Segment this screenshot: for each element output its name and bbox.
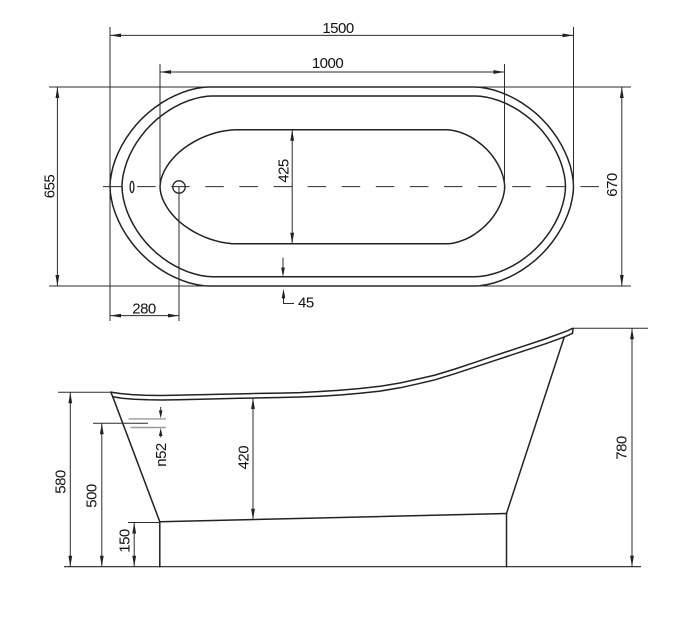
svg-text:655: 655 — [42, 175, 59, 199]
svg-text:n52: n52 — [153, 443, 170, 467]
svg-text:1500: 1500 — [322, 20, 354, 37]
svg-text:500: 500 — [84, 484, 101, 508]
svg-text:1000: 1000 — [312, 55, 344, 72]
svg-text:425: 425 — [276, 159, 293, 183]
svg-text:45: 45 — [298, 295, 314, 312]
svg-text:420: 420 — [236, 446, 253, 470]
svg-text:580: 580 — [53, 470, 70, 494]
svg-text:670: 670 — [604, 173, 621, 197]
svg-text:280: 280 — [132, 301, 156, 318]
svg-text:780: 780 — [614, 436, 631, 460]
svg-text:150: 150 — [116, 529, 133, 553]
